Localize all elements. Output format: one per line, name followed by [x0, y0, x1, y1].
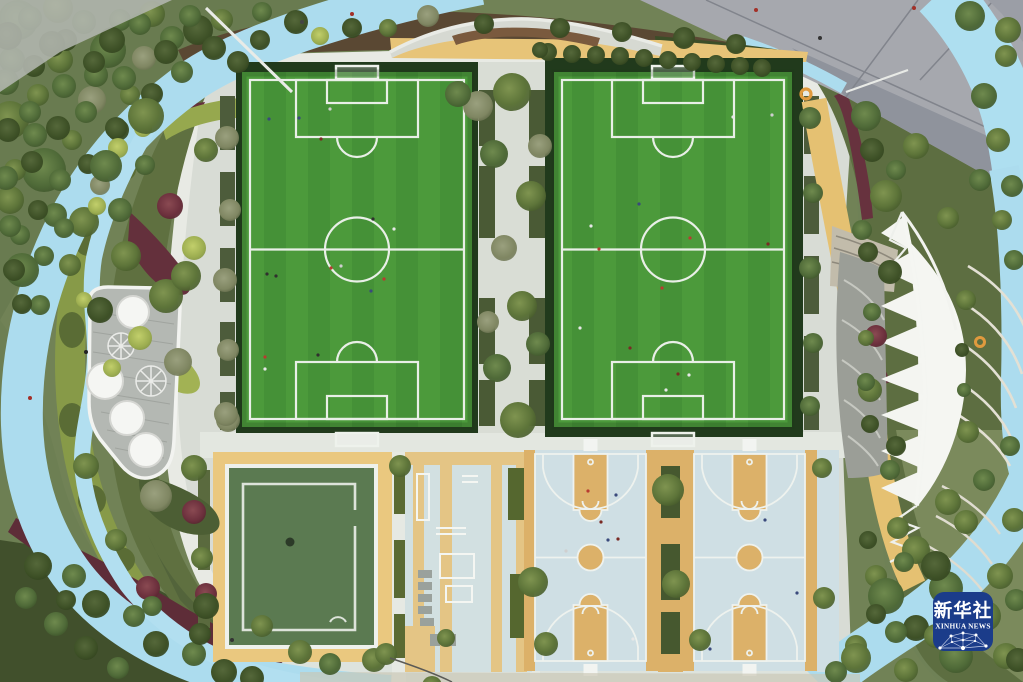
svg-text:新华社: 新华社: [934, 600, 993, 621]
svg-text:XINHUA NEWS: XINHUA NEWS: [935, 622, 990, 631]
